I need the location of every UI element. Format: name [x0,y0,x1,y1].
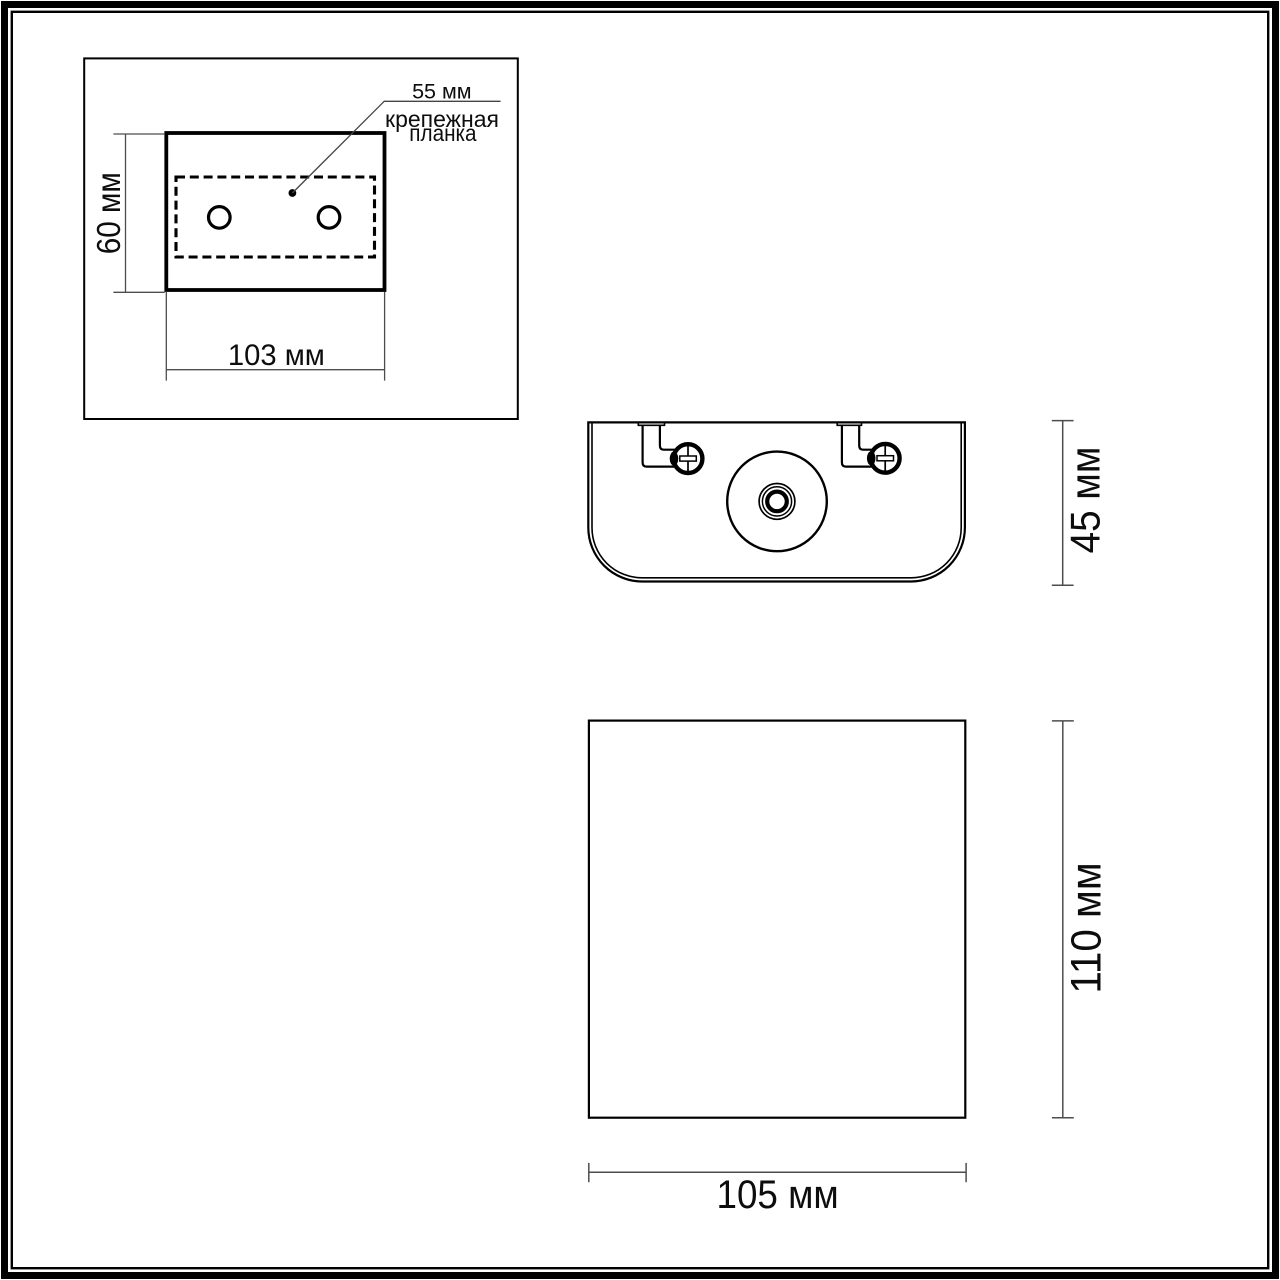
svg-text:103 мм: 103 мм [228,339,325,372]
svg-text:45 мм: 45 мм [1061,447,1109,554]
svg-text:60 мм: 60 мм [91,172,128,254]
svg-text:55 мм: 55 мм [412,79,471,103]
svg-text:110 мм: 110 мм [1061,862,1109,993]
svg-text:планка: планка [409,120,477,146]
svg-text:105 мм: 105 мм [716,1172,838,1217]
